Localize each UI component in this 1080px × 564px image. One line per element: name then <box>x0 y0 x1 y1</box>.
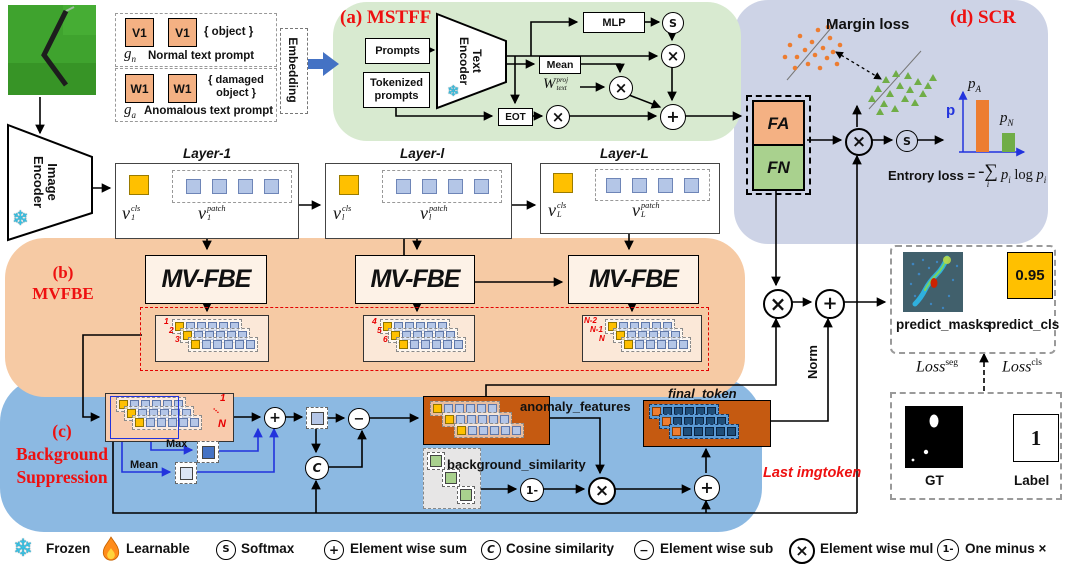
diagram-shape <box>793 66 798 71</box>
token-square <box>512 426 521 435</box>
cosine-op: C <box>305 456 329 480</box>
mul-op-big: × <box>763 289 793 319</box>
diagram-shape <box>327 431 362 467</box>
vl-cls-label: vclsl <box>333 203 351 224</box>
g-n-symbol: gn <box>124 46 136 64</box>
diagram-shape <box>906 86 914 93</box>
loss-cls-label: Losscls <box>1002 358 1042 376</box>
mvfbe-block-3: MV-FBE <box>568 255 699 304</box>
token-row <box>188 337 258 352</box>
predict-masks-image <box>903 252 963 317</box>
cosine-icon: C <box>481 540 501 560</box>
token-square <box>501 426 510 435</box>
max-token-cell <box>197 441 219 463</box>
frozen-icon: ❄ <box>13 534 33 563</box>
token-square <box>246 340 255 349</box>
normal-object-label: { object } <box>204 26 253 38</box>
token-square <box>454 340 463 349</box>
token-square <box>727 427 736 436</box>
token-square <box>606 178 621 193</box>
token-square <box>684 178 699 193</box>
last-imgtoken-label: Last imgtoken <box>763 465 861 481</box>
token-square <box>235 340 244 349</box>
diagram-shape <box>901 95 909 102</box>
mul-icon: × <box>789 538 815 564</box>
max-label: Max <box>166 438 187 450</box>
vl-patch-label: vpatchl <box>420 203 448 224</box>
predict-masks-label: predict_masks <box>896 317 991 332</box>
figure-canvas: V1 V1 { object } gn Normal text prompt W… <box>0 0 1080 564</box>
token-square <box>264 179 279 194</box>
normal-prompt-caption: Normal text prompt <box>148 50 254 62</box>
prompt-token-v1-a: V1 <box>125 18 154 47</box>
token-square <box>224 340 233 349</box>
diagram-shape <box>1002 133 1015 152</box>
diagram-shape <box>838 43 843 48</box>
diagram-shape <box>825 56 830 61</box>
one-minus-icon: 1- <box>937 539 959 561</box>
token-square <box>179 418 188 427</box>
layerl-title: Layer-l <box>400 146 444 161</box>
feature-stack-1: 1 2 3 <box>155 315 269 362</box>
final-token-label: final_token <box>668 386 737 401</box>
p-a-label: pA <box>968 76 981 94</box>
input-image <box>8 5 96 100</box>
diagram-shape <box>828 36 833 41</box>
sub-op: − <box>348 408 370 430</box>
token-square <box>443 340 452 349</box>
frozen-icon: ❄ <box>447 82 460 100</box>
prompt-token-w1-a: W1 <box>125 74 154 103</box>
anomalous-prompt-caption: Anomalous text prompt <box>144 105 273 117</box>
selected-subset-outline <box>110 396 179 439</box>
frozen-icon: ❄ <box>12 206 29 231</box>
diagram-shape <box>929 74 937 81</box>
token-square <box>410 340 419 349</box>
softmax-op: S <box>896 130 918 152</box>
token-square <box>399 340 408 349</box>
mstff-title: (a) MSTFF <box>340 7 431 29</box>
token-square <box>190 418 199 427</box>
diagram-shape <box>783 55 788 60</box>
p-axis-label: p <box>946 102 955 119</box>
mul-op: × <box>609 76 633 100</box>
diagram-shape <box>891 105 899 112</box>
p-n-label: pN <box>1000 110 1014 128</box>
token-square <box>422 179 437 194</box>
diagram-shape <box>914 78 922 85</box>
vL-patch-label: vpatchL <box>632 200 660 221</box>
diagram-shape <box>803 48 808 53</box>
token-square <box>212 179 227 194</box>
token-square <box>186 179 201 194</box>
diagram-shape <box>795 55 800 60</box>
diagram-shape <box>813 53 818 58</box>
label-value-box: 1 <box>1013 414 1059 462</box>
diagram-shape <box>306 52 339 76</box>
v1-patch-label: vpatch1 <box>198 203 226 224</box>
embedding-label: Embedding <box>279 25 307 115</box>
mvfbe-block-1: MV-FBE <box>145 255 267 304</box>
gt-mask-image <box>905 406 963 473</box>
token-square <box>683 427 692 436</box>
token-square <box>421 340 430 349</box>
layer1-title: Layer-1 <box>183 146 231 161</box>
mvfbe-block-2: MV-FBE <box>355 255 475 304</box>
tokenized-prompts-box: Tokenizedprompts <box>363 72 430 108</box>
eot-box: EOT <box>498 108 533 126</box>
token-square <box>432 340 441 349</box>
token-row <box>454 423 524 438</box>
token-square <box>658 178 673 193</box>
cls-token <box>339 175 359 195</box>
token-square <box>479 426 488 435</box>
diagram-shape <box>904 72 912 79</box>
token-square <box>396 179 411 194</box>
norm-label: Norm <box>799 322 825 402</box>
feature-stack-3: N-2 N-1 N <box>582 315 702 362</box>
token-square <box>657 340 666 349</box>
diagram-shape <box>886 90 894 97</box>
mean-token-cell <box>175 462 197 484</box>
diagram-shape <box>836 52 881 79</box>
final-token-box <box>643 400 771 447</box>
fn-box: FN <box>752 144 805 191</box>
predict-cls-label: predict_cls <box>988 317 1059 332</box>
diagram-shape <box>798 34 803 39</box>
token-row <box>396 337 466 352</box>
sub-icon: − <box>634 540 654 560</box>
token-square <box>668 340 677 349</box>
token-square <box>705 427 714 436</box>
sum-icon: + <box>324 540 344 560</box>
diagram-shape <box>835 62 840 67</box>
background-similarity-label: background_similarity <box>447 457 586 472</box>
token-square <box>433 404 442 413</box>
token-square <box>632 178 647 193</box>
token-square <box>490 426 499 435</box>
image-encoder-label: ImageEncoder <box>28 137 62 227</box>
feature-stack-2: 4 5 6 <box>363 315 475 362</box>
token-square <box>672 427 681 436</box>
fa-box: FA <box>752 100 805 147</box>
label-caption: Label <box>1014 473 1049 488</box>
mvfbe-title: (b)MVFBE <box>30 262 96 305</box>
anomalous-object-label: { damagedobject } <box>203 74 269 99</box>
vL-cls-label: vclsL <box>548 200 566 221</box>
legend-sum: Element wise sum <box>350 541 467 556</box>
predict-cls-score: 0.95 <box>1007 252 1053 299</box>
token-square <box>679 340 688 349</box>
legend-softmax: Softmax <box>241 541 294 556</box>
diagram-shape <box>831 50 836 55</box>
sum-op: + <box>660 104 686 130</box>
token-square <box>468 426 477 435</box>
diagram-shape <box>810 40 815 45</box>
diagram-shape <box>896 82 904 89</box>
legend-cosine: Cosine similarity <box>506 541 614 556</box>
prompts-box: Prompts <box>365 38 430 64</box>
patch-tokens <box>172 170 292 203</box>
v1-cls-label: vcls1 <box>122 203 140 224</box>
token-square <box>624 340 633 349</box>
diagram-shape <box>788 43 793 48</box>
diagram-shape <box>531 22 577 56</box>
diagram-shape <box>874 85 882 92</box>
anomaly-features-label: anomaly_features <box>520 399 631 414</box>
token-row <box>621 337 691 352</box>
entropy-loss-formula: Entrory loss = -∑ i pi log pi <box>888 163 1046 188</box>
diagram-shape <box>869 51 921 109</box>
diagram-shape <box>924 82 932 89</box>
token-square <box>474 179 489 194</box>
mlp-box: MLP <box>583 12 645 33</box>
diagram-shape <box>821 46 826 51</box>
bgsup-title: (c)BackgroundSuppression <box>8 420 116 488</box>
diagram-shape <box>629 95 660 107</box>
sum-op-big: + <box>815 289 845 319</box>
prompt-token-w1-b: W1 <box>168 74 197 103</box>
diagram-shape <box>976 100 989 152</box>
mul-op: × <box>661 44 685 68</box>
token-square <box>191 340 200 349</box>
token-row <box>669 424 739 439</box>
sum-op: + <box>694 475 720 501</box>
scr-title: (d) SCR <box>950 7 1016 29</box>
diagram-shape <box>103 537 118 560</box>
legend-one-minus: One minus × <box>965 541 1046 556</box>
sum-op: + <box>264 407 286 429</box>
margin-loss-label: Margin loss <box>826 16 909 33</box>
diagram-shape <box>806 62 811 67</box>
token-square <box>716 427 725 436</box>
diagram-shape <box>816 28 821 33</box>
mean-label: Mean <box>130 459 158 471</box>
diagram-shape <box>818 66 823 71</box>
patch-tokens <box>595 169 710 201</box>
gt-label: GT <box>925 473 944 488</box>
prompt-token-v1-b: V1 <box>168 18 197 47</box>
legend-frozen: Frozen <box>46 541 90 556</box>
w-text-proj-symbol: W projtext <box>543 76 568 93</box>
one-minus-op: 1- <box>520 478 544 502</box>
diagram-shape <box>579 64 620 72</box>
g-a-symbol: ga <box>124 102 136 120</box>
legend-learnable: Learnable <box>126 541 190 556</box>
patch-tokens <box>382 170 502 203</box>
token-square <box>238 179 253 194</box>
mul-op: × <box>845 128 873 156</box>
mean-box: Mean <box>539 56 581 74</box>
token-square <box>646 340 655 349</box>
diagram-shape <box>868 95 876 102</box>
diagram-shape <box>911 99 919 106</box>
enhanced-token-cell <box>306 407 328 429</box>
cls-token <box>553 173 573 193</box>
mul-op: × <box>588 477 616 505</box>
token-square <box>448 179 463 194</box>
softmax-icon: S <box>216 540 236 560</box>
token-square <box>694 427 703 436</box>
diagram-shape <box>880 100 888 107</box>
layerL-title: Layer-L <box>600 146 649 161</box>
diagram-shape <box>892 70 900 77</box>
mul-op: × <box>546 105 570 129</box>
diagram-shape <box>882 76 890 83</box>
token-square <box>635 340 644 349</box>
cls-token <box>129 175 149 195</box>
legend-sub: Element wise sub <box>660 541 773 556</box>
diagram-shape <box>876 108 884 115</box>
legend-mul: Element wise mul <box>820 541 933 556</box>
token-square <box>202 340 211 349</box>
loss-seg-label: Lossseg <box>916 358 958 376</box>
diagram-shape <box>919 90 927 97</box>
token-square <box>213 340 222 349</box>
token-square <box>457 426 466 435</box>
token-square <box>445 415 454 424</box>
softmax-op: S <box>662 12 684 34</box>
